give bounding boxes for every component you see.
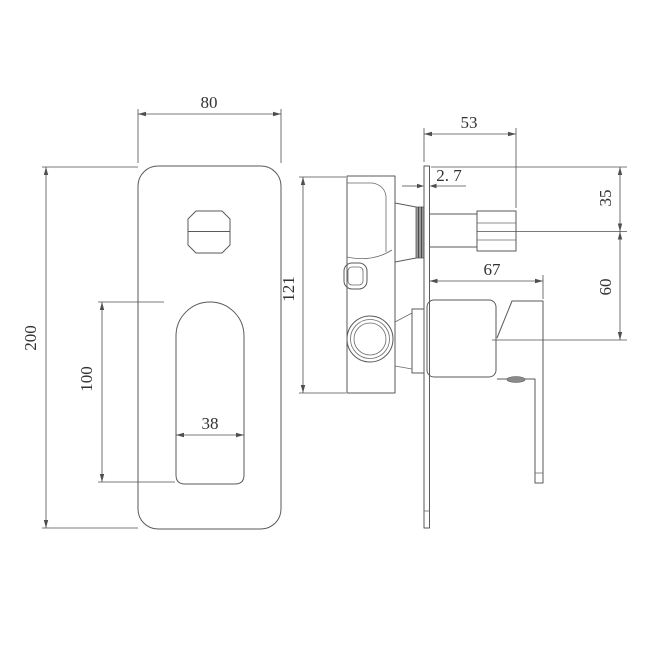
dimension-handle-projection: 67 bbox=[430, 260, 544, 299]
dimension-knob-offsets: 35 60 bbox=[431, 167, 627, 340]
drawing-canvas: 80 200 100 38 bbox=[0, 0, 645, 645]
front-handle bbox=[176, 302, 244, 484]
front-diverter-button bbox=[188, 211, 230, 253]
dimension-plate-width: 80 bbox=[138, 93, 281, 163]
dim-label-200: 200 bbox=[21, 325, 40, 351]
dimension-handle-length: 100 bbox=[77, 302, 175, 482]
technical-drawing-svg: 80 200 100 38 bbox=[0, 0, 645, 645]
dim-label-53: 53 bbox=[461, 113, 478, 132]
threaded-ring bbox=[416, 207, 424, 258]
handle-base-cylinder bbox=[427, 300, 496, 377]
cartridge-neck bbox=[395, 203, 416, 262]
dim-label-80: 80 bbox=[201, 93, 218, 112]
dim-label-60: 60 bbox=[596, 279, 615, 296]
dim-label-2-7: 2. 7 bbox=[436, 166, 462, 185]
dim-label-35: 35 bbox=[596, 190, 615, 207]
dim-label-38: 38 bbox=[202, 414, 219, 433]
body-contour-line bbox=[347, 250, 392, 259]
side-outlet-port bbox=[347, 316, 393, 362]
dimension-plate-thickness: 2. 7 bbox=[402, 166, 466, 188]
dim-label-100: 100 bbox=[77, 366, 96, 392]
front-trim-plate bbox=[138, 166, 281, 529]
side-valve-body bbox=[347, 176, 395, 393]
dim-label-67: 67 bbox=[484, 260, 502, 279]
dimension-plate-height: 200 bbox=[21, 167, 138, 528]
diverter-knob bbox=[430, 211, 517, 251]
side-view bbox=[344, 166, 543, 528]
front-view bbox=[138, 166, 281, 529]
body-contour-line bbox=[347, 183, 386, 252]
dim-label-121: 121 bbox=[279, 276, 298, 302]
dimension-handle-width: 38 bbox=[176, 414, 244, 437]
handle-lever bbox=[497, 301, 543, 483]
dimension-body-height: 121 bbox=[279, 177, 346, 393]
dimension-knob-projection: 53 bbox=[424, 113, 516, 208]
handle-collar bbox=[395, 309, 424, 373]
